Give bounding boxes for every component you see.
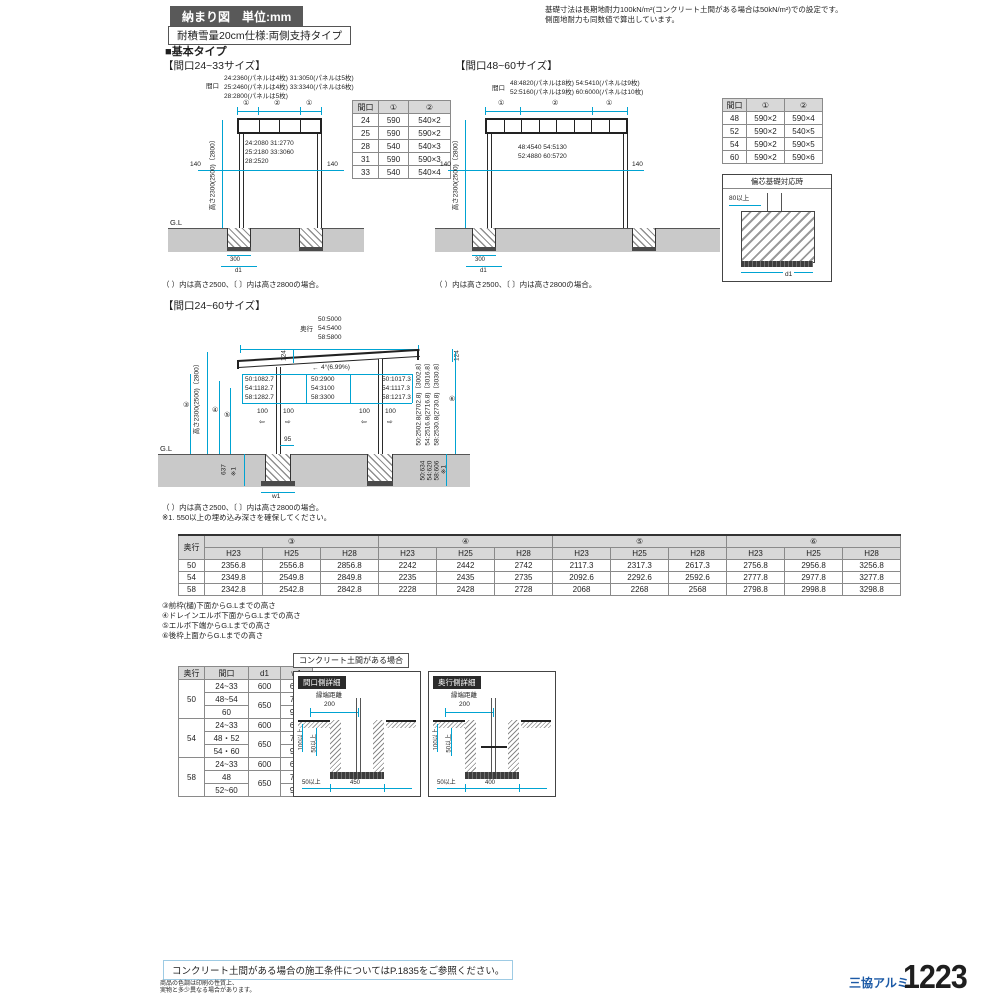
dim-tick [321, 107, 322, 115]
table-row: 54590×2590×5 [723, 138, 823, 151]
disclaimer-line2: 実物と多少異なる場合があります。 [160, 988, 255, 996]
dim-line [237, 111, 322, 112]
roof-panel [280, 120, 301, 132]
embed-depth-dim: 637 [220, 457, 227, 483]
base-width-dim: w1 [272, 493, 280, 501]
foundation-note-line1: 基礎寸法は長期地耐力100kN/m²(コンクリート土間がある場合は50kN/m²… [545, 5, 843, 14]
ref-circle-6: ⑥ [449, 396, 455, 405]
dim-line [293, 350, 294, 363]
clearance-dim: 100 [283, 408, 294, 416]
front-seg-dim-1: 50:1082.7 [245, 376, 274, 384]
roof-panel [575, 120, 593, 132]
clearance-dim: 100 [385, 408, 396, 416]
footing-d1-dim: d1 [783, 271, 794, 279]
ref-circle-3: ③ [183, 402, 189, 411]
post-line [495, 698, 496, 772]
post-line [491, 698, 492, 772]
edge-distance-label: 縁端距離 [316, 692, 342, 700]
dim-tick [258, 107, 259, 115]
ground-level-label: G.L [170, 218, 182, 227]
ref-circle-4: ④ [212, 407, 218, 416]
col-header: 間口 [723, 99, 747, 112]
front-small-spec-table: 間口①② 24590540×2 25590590×2 28540540×3 31… [352, 100, 451, 179]
post-offset-dim: 95 [284, 436, 291, 444]
dim-line [437, 788, 547, 789]
dim-line [242, 403, 412, 404]
roof-panel-strip [237, 118, 322, 134]
legend-5: ⑤エルボ下端からG.Lまでの高さ [162, 621, 271, 630]
footing [472, 228, 496, 247]
height-table: 奥行 ③ ④ ⑤ ⑥ H23H25H28 H23H25H28 H23H25H28… [178, 534, 901, 596]
footing-base [227, 247, 251, 251]
dim-tick [384, 784, 385, 792]
trench-wall [330, 720, 341, 772]
dim-line [198, 170, 344, 171]
dim-line [445, 712, 493, 713]
dim-tick [358, 708, 359, 717]
table-row: 52590×2540×5 [723, 125, 823, 138]
slope-annotation: 4°(6.99%) [321, 364, 350, 372]
min-50-bottom-dim: 50以上 [437, 780, 456, 788]
dim-line [741, 272, 813, 273]
table-row: 奥行 ③ ④ ⑤ ⑥ [179, 535, 901, 548]
post [276, 367, 281, 454]
dim-line [227, 255, 251, 256]
dim-line [310, 712, 358, 713]
dim-tick [627, 107, 628, 115]
min-50-dim: 50以上 [312, 732, 319, 754]
table-row: 50 2356.82556.82856.8 224224422742 2117.… [179, 560, 901, 572]
min-offset-dim: 80以上 [729, 195, 749, 203]
table-row: 48590×2590×4 [723, 112, 823, 125]
front-seg-dim-2: 54:1182.7 [245, 385, 273, 393]
ground [168, 228, 364, 252]
roof-panel [610, 120, 627, 132]
span-label: 間口 [492, 85, 505, 93]
roof-panel [522, 120, 540, 132]
dim-tick [330, 784, 331, 792]
dim-tick [350, 374, 351, 403]
span-dim-2: 25:2460(パネルは4枚) 33:3340(パネルは6枚) [224, 84, 354, 92]
footing-base [632, 247, 656, 251]
concrete-slab [521, 720, 551, 728]
dim-tick [310, 708, 311, 717]
depth-dim-1: 50:5000 [318, 316, 342, 324]
footing [741, 211, 815, 263]
eccentric-title: 偏芯基礎対応時 [723, 177, 831, 189]
inner-dim-2: 25:2180 33:3060 [245, 149, 294, 157]
footing-d1-dim: d1 [480, 268, 487, 276]
height-dim: 高さ2300(2500)〔2800〕 [452, 126, 459, 222]
col-header: ② [409, 101, 451, 114]
mid-seg-dim-2: 54:3100 [311, 385, 335, 393]
page-number: 1223 [903, 958, 967, 996]
col-header: ① [379, 101, 409, 114]
dim-line [466, 266, 502, 267]
ground-level-label: G.L [160, 444, 172, 453]
inner-dim-1: 48:4540 54:5130 [518, 144, 567, 152]
table-row: H23H25H28 H23H25H28 H23H25H28 H23H25H28 [179, 548, 901, 560]
arrow-left-icon: ⇦ [361, 419, 367, 428]
dim-tick [465, 784, 466, 792]
detail-title: 奥行側詳細 [433, 676, 481, 689]
side-note-1: （ ）内は高さ2500、〔 〕内は高さ2800の場合。 [162, 503, 323, 512]
dim-line [244, 454, 245, 486]
rear-height-dim-3: 58:2530.8(2730.8)〔3030.8〕 [433, 355, 440, 451]
edge-distance-label: 縁端距離 [451, 692, 477, 700]
table-row: 28540540×3 [353, 140, 451, 153]
roof-panel [505, 120, 523, 132]
group-header: ③ [205, 535, 379, 548]
dim-line [448, 170, 644, 171]
group-header: ⑤ [553, 535, 727, 548]
trench-wall [508, 720, 519, 772]
side-view-title: 【間口24~60サイズ】 [163, 300, 266, 313]
dim-line [465, 120, 466, 228]
rear-seg-dim-1: 50:1017.3 [382, 376, 411, 384]
arrow-left-icon: ⇦ [259, 419, 265, 428]
depth-label: 奥行 [300, 326, 313, 334]
roof-panel-strip [485, 118, 628, 134]
trench-base [330, 772, 384, 779]
segment-label: ② [552, 100, 558, 109]
edge-distance-value: 200 [324, 701, 335, 709]
roof-panel [540, 120, 558, 132]
trench-wall [373, 720, 384, 772]
footing [227, 228, 251, 247]
dim-line [472, 255, 496, 256]
roof-rise-dim: 124 [280, 348, 287, 364]
edge-distance-value: 200 [459, 701, 470, 709]
rear-height-dim-1: 50:2502.8(2702.8)〔3002.8〕 [415, 355, 422, 451]
table-row: 54 2349.82549.82849.8 223524352735 2092.… [179, 572, 901, 584]
embed-depth-note: ※1 [230, 462, 237, 482]
segment-label: ② [274, 100, 280, 109]
depth-dim-3: 58:5800 [318, 334, 342, 342]
table-row: 58 2342.82542.82842.8 222824282728 20682… [179, 584, 901, 596]
dim-tick [242, 374, 243, 403]
dim-line [280, 445, 294, 446]
trench-width-dim: 400 [485, 780, 495, 788]
dim-tick [240, 345, 241, 353]
dim-line [230, 388, 231, 454]
side-note-2: ※1. 550以上の埋め込み深さを確保してください。 [162, 513, 331, 522]
inner-dim-3: 28:2520 [245, 158, 269, 166]
ref-circle-5: ⑤ [224, 412, 230, 421]
brand-logo: 三協アルミ [849, 974, 909, 991]
trench-width-dim: 450 [350, 780, 360, 788]
legend-3: ③前枠(樋)下面からG.Lまでの高さ [162, 601, 276, 610]
dim-tick [519, 784, 520, 792]
col-header: 間口 [353, 101, 379, 114]
depth-dim-2: 54:5400 [318, 325, 342, 333]
dim-line [221, 266, 257, 267]
segment-label: ① [498, 100, 504, 109]
dim-line [729, 205, 761, 206]
dim-line [437, 724, 438, 752]
footing [632, 228, 656, 247]
table-row: 25590590×2 [353, 127, 451, 140]
mid-seg-dim-3: 58:3300 [311, 394, 335, 402]
table-row: 24590540×2 [353, 114, 451, 127]
concrete-slab [386, 720, 416, 728]
post [317, 134, 322, 228]
dim-line [446, 454, 447, 486]
table-row: 31590590×3 [353, 153, 451, 166]
dim-line [222, 120, 223, 228]
group-header: ⑥ [727, 535, 901, 548]
legend-6: ⑥後枠上面からG.Lまでの高さ [162, 631, 263, 640]
section-title: ■基本タイプ [165, 46, 227, 60]
reference-note: コンクリート土間がある場合の施工条件についてはP.1835をご参照ください。 [163, 960, 513, 980]
legend-4: ④ドレインエルボ下面からG.Lまでの高さ [162, 611, 301, 620]
mid-seg-dim-1: 50:2900 [311, 376, 335, 384]
roof-panel [301, 120, 321, 132]
height-dim: 高さ2300(2500)〔2800〕 [193, 350, 200, 446]
rear-seg-dim-2: 54:1117.3 [382, 385, 410, 393]
span-dim-2: 52:5160(パネルは9枚) 60:6000(パネルは10枚) [510, 89, 643, 97]
footing-base [741, 261, 813, 267]
segment-label: ① [306, 100, 312, 109]
group-header: ④ [379, 535, 553, 548]
dim-tick [306, 374, 307, 403]
min-50-dim: 50以上 [447, 732, 454, 754]
dim-tick [493, 708, 494, 717]
offset-dim: 140 [190, 161, 201, 169]
front-large-spec-table: 間口①② 48590×2590×4 52590×2540×5 54590×259… [722, 98, 823, 164]
slope-arrow-icon: ← [312, 365, 319, 373]
footing-width-dim: 300 [475, 257, 485, 265]
post-baseplate [481, 746, 507, 748]
arrow-right-icon: ⇨ [387, 419, 393, 428]
offset-dim: 140 [440, 161, 451, 169]
span-label: 間口 [206, 83, 219, 91]
col-header: 奥行 [179, 535, 205, 560]
footing [299, 228, 323, 247]
post [239, 134, 244, 228]
front-seg-dim-3: 58:1282.7 [245, 394, 274, 402]
footing [265, 454, 291, 481]
table-row: 33540540×4 [353, 166, 451, 179]
footing-base [367, 481, 393, 486]
dim-tick [445, 708, 446, 717]
offset-dim: 140 [327, 161, 338, 169]
col-header: ② [785, 99, 823, 112]
dim-line [242, 374, 412, 375]
front-small-title: 【間口24~33サイズ】 [163, 60, 266, 73]
dim-tick [520, 107, 521, 115]
height-note: （ ）内は高さ2500、〔 〕内は高さ2800の場合。 [435, 280, 596, 289]
catalog-page: 納まり図 単位:mm 基礎寸法は長期地耐力100kN/m²(コンクリート土間があ… [0, 0, 1000, 1000]
front-gutter [237, 360, 239, 369]
page-title-badge: 納まり図 単位:mm [170, 6, 303, 27]
dim-line [190, 374, 191, 454]
roof-panel [239, 120, 260, 132]
dim-tick [592, 107, 593, 115]
clearance-dim: 100 [359, 408, 370, 416]
post-line [356, 698, 357, 772]
concrete-detail-depth: 奥行側詳細 縁端距離 200 100以上 50以上 50以上 400 [428, 671, 556, 797]
dim-line [451, 728, 452, 756]
footing-d1-dim: d1 [235, 268, 242, 276]
detail-title: 間口側詳細 [298, 676, 346, 689]
span-dim-1: 24:2360(パネルは4枚) 31:3050(パネルは5枚) [224, 75, 354, 83]
offset-dim: 140 [632, 161, 643, 169]
inner-dim-2: 52:4880 60:5720 [518, 153, 567, 161]
concrete-badge: コンクリート土間がある場合 [293, 653, 409, 668]
roof-panel [557, 120, 575, 132]
footing-width-dim: 300 [230, 257, 240, 265]
roof-panel [487, 120, 505, 132]
dim-tick [485, 107, 486, 115]
eccentric-foundation-box: 偏芯基礎対応時 80以上 d1 [722, 174, 832, 282]
dim-line [302, 788, 412, 789]
roof-panel [260, 120, 281, 132]
foundation-note-line2: 側面地耐力も同数値で算出しています。 [545, 15, 679, 24]
trench-wall [465, 720, 476, 772]
footing-base [299, 247, 323, 251]
dim-tick [412, 374, 413, 403]
table-row: 60590×2590×6 [723, 151, 823, 164]
post [487, 134, 492, 228]
height-dim: 高さ2300(2500)〔2800〕 [209, 126, 216, 222]
clearance-dim: 100 [257, 408, 268, 416]
roof-panel [592, 120, 610, 132]
dim-line [485, 111, 628, 112]
footing-base [261, 481, 295, 486]
trench-base [465, 772, 519, 779]
dim-line [316, 728, 317, 756]
min-50-bottom-dim: 50以上 [302, 780, 321, 788]
segment-label: ① [243, 100, 249, 109]
col-header: ① [747, 99, 785, 112]
dim-tick [237, 107, 238, 115]
height-note: （ ）内は高さ2500、〔 〕内は高さ2800の場合。 [162, 280, 323, 289]
footing-base [472, 247, 496, 251]
post-line [360, 698, 361, 772]
rear-seg-dim-3: 58:1217.3 [382, 394, 411, 402]
snow-load-spec-box: 耐積雪量20cm仕様:両側支持タイプ [168, 26, 351, 45]
segment-label: ① [606, 100, 612, 109]
dim-line [207, 352, 208, 454]
inner-dim-1: 24:2080 31:2770 [245, 140, 294, 148]
dim-tick [300, 107, 301, 115]
dim-line [219, 381, 220, 454]
dim-line [302, 724, 303, 752]
rear-height-dim-2: 54:2516.8(2716.8)〔3016.8〕 [424, 355, 431, 451]
front-large-title: 【間口48~60サイズ】 [455, 60, 558, 73]
post [623, 134, 628, 228]
concrete-detail-front: 間口側詳細 縁端距離 200 100以上 50以上 50以上 450 [293, 671, 421, 797]
span-dim-1: 48:4820(パネルは8枚) 54:5410(パネルは9枚) [510, 80, 640, 88]
arrow-right-icon: ⇨ [285, 419, 291, 428]
footing [367, 454, 393, 481]
